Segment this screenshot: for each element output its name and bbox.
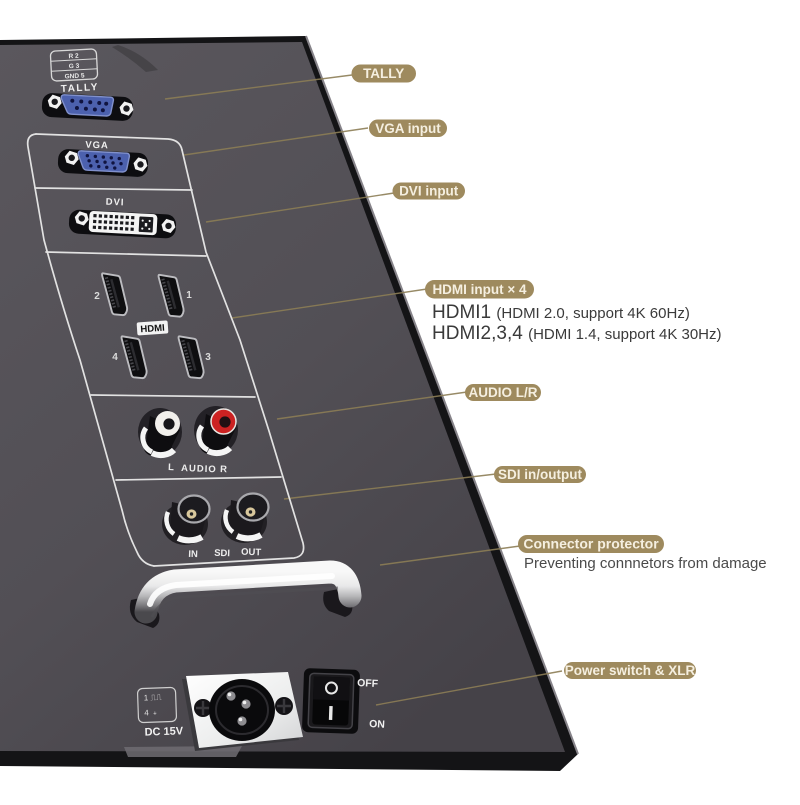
svg-text:HDMI input × 4: HDMI input × 4	[432, 282, 527, 297]
svg-text:R 2: R 2	[68, 53, 79, 61]
svg-text:HDMI1 (HDMI 2.0, support 4K 60: HDMI1 (HDMI 2.0, support 4K 60Hz)	[432, 302, 690, 323]
svg-text:Preventing connnetors from dam: Preventing connnetors from damage	[524, 555, 767, 572]
svg-text:4: 4	[112, 352, 118, 363]
svg-text:ON: ON	[369, 718, 385, 731]
svg-text:AUDIO L/R: AUDIO L/R	[469, 385, 538, 400]
svg-text:IN: IN	[188, 549, 198, 560]
svg-text:2: 2	[94, 291, 100, 302]
svg-text:R: R	[220, 464, 227, 475]
svg-text:Power switch & XLR: Power switch & XLR	[565, 663, 696, 678]
svg-text:DVI: DVI	[105, 197, 124, 209]
svg-text:GND 5: GND 5	[64, 72, 85, 80]
svg-text:HDMI2,3,4 (HDMI 1.4, support 4: HDMI2,3,4 (HDMI 1.4, support 4K 30Hz)	[432, 323, 722, 344]
svg-text:G 3: G 3	[69, 63, 80, 71]
svg-text:VGA: VGA	[85, 140, 109, 152]
svg-text:SDI: SDI	[214, 548, 230, 560]
svg-text:HDMI: HDMI	[140, 323, 165, 336]
svg-text:L: L	[168, 462, 174, 473]
svg-text:3: 3	[205, 352, 211, 363]
svg-text:TALLY: TALLY	[61, 82, 100, 95]
svg-text:DC 15V: DC 15V	[144, 725, 184, 738]
svg-text:1 ⎍⎍: 1 ⎍⎍	[144, 693, 163, 703]
svg-text:DVI input: DVI input	[399, 184, 459, 199]
svg-text:TALLY: TALLY	[363, 66, 404, 81]
svg-text:4 ﹢: 4 ﹢	[144, 708, 159, 718]
svg-text:OUT: OUT	[241, 547, 262, 559]
svg-text:VGA input: VGA input	[375, 121, 441, 136]
svg-text:OFF: OFF	[357, 677, 379, 690]
svg-text:1: 1	[186, 290, 192, 301]
svg-text:Connector protector: Connector protector	[523, 536, 659, 552]
svg-text:SDI in/output: SDI in/output	[498, 467, 582, 482]
svg-text:AUDIO: AUDIO	[181, 463, 217, 475]
